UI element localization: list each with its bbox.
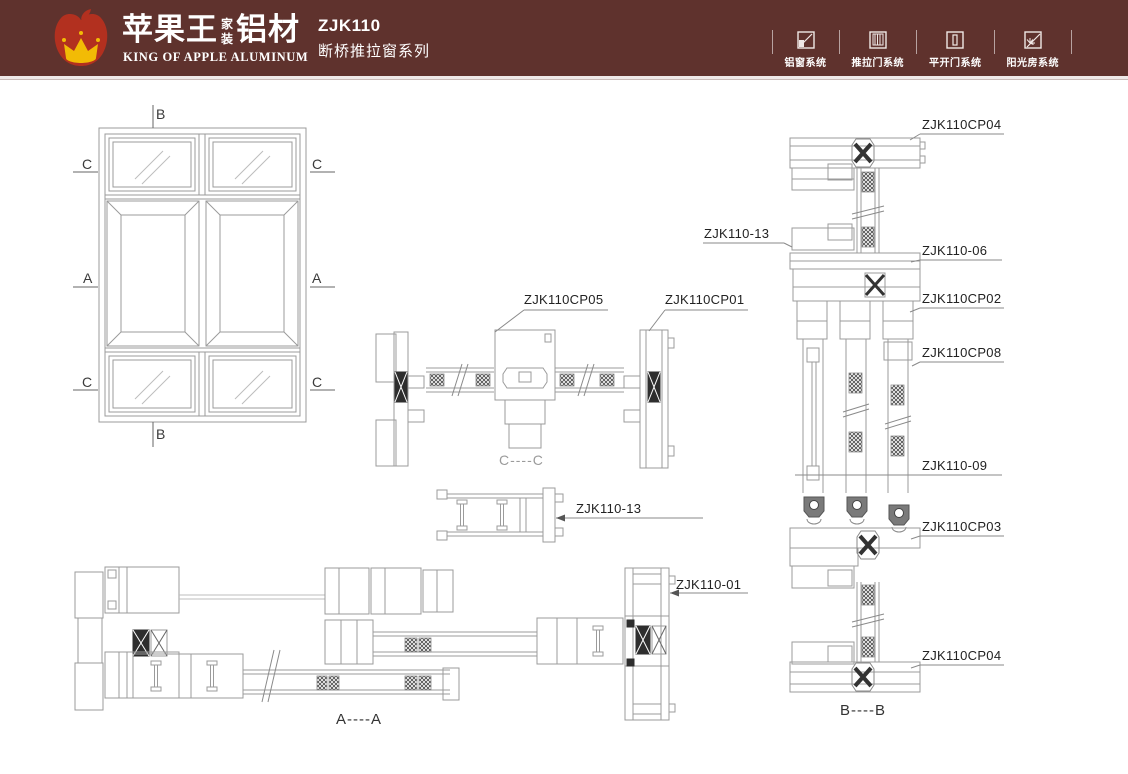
section-aa-drawing — [75, 567, 748, 720]
roller — [804, 497, 824, 524]
brand-name-en: KING OF APPLE ALUMINUM — [123, 50, 308, 65]
label-zjk110cp04-top: ZJK110CP04 — [922, 117, 1001, 132]
nav-item-window-system[interactable]: 铝窗系统 — [785, 30, 827, 69]
brand-name: 苹果王 家 装 铝材 — [122, 14, 300, 47]
nav-item-sunroom-system[interactable]: 阳光房系统 — [1007, 30, 1060, 69]
elevation-drawing — [73, 105, 335, 447]
elevation-marker-c-bottom-right: C — [312, 374, 322, 390]
label-zjk110cp03: ZJK110CP03 — [922, 519, 1001, 534]
label-zjk110cp01: ZJK110CP01 — [665, 292, 744, 307]
brand-cn-suffix: 铝材 — [236, 14, 300, 45]
system-nav: 铝窗系统 推拉门系统 平开门系统 — [760, 30, 1085, 69]
window-system-icon — [796, 30, 816, 50]
elevation-marker-a-right: A — [312, 270, 321, 286]
nav-separator — [839, 30, 840, 54]
elevation-marker-c-top-left: C — [82, 156, 92, 172]
sliding-door-system-icon — [868, 30, 888, 50]
nav-item-casement-door-system[interactable]: 平开门系统 — [929, 30, 982, 69]
brand-cn-stack: 家 装 — [221, 17, 233, 47]
product-code: ZJK110 — [318, 16, 381, 36]
section-cc-drawing — [376, 310, 748, 468]
nav-separator — [1071, 30, 1072, 54]
section-caption-bb: B----B — [840, 702, 886, 719]
elevation-marker-b-bottom: B — [156, 426, 165, 442]
elevation-marker-c-bottom-left: C — [82, 374, 92, 390]
label-zjk110-13-left: ZJK110-13 — [704, 226, 769, 241]
brand-cn-main: 苹果王 — [122, 14, 218, 45]
product-series-title: 断桥推拉窗系列 — [318, 40, 430, 61]
sunroom-system-icon — [1023, 30, 1043, 50]
label-zjk110-06: ZJK110-06 — [922, 243, 987, 258]
label-zjk110cp08: ZJK110CP08 — [922, 345, 1001, 360]
apple-logo — [50, 7, 112, 69]
label-zjk110cp05: ZJK110CP05 — [524, 292, 603, 307]
header: 苹果王 家 装 铝材 KING OF APPLE ALUMINUM ZJK110… — [0, 0, 1128, 79]
casement-door-system-icon — [945, 30, 965, 50]
profile-13-drawing — [437, 488, 703, 542]
label-zjk110-09: ZJK110-09 — [922, 458, 987, 473]
label-zjk110-01: ZJK110-01 — [676, 577, 741, 592]
label-zjk110cp04-bottom: ZJK110CP04 — [922, 648, 1001, 663]
section-caption-cc: C----C — [499, 452, 544, 468]
nav-separator — [916, 30, 917, 54]
elevation-marker-b-top: B — [156, 106, 165, 122]
nav-separator — [772, 30, 773, 54]
roller — [847, 497, 867, 524]
nav-item-sliding-door-system[interactable]: 推拉门系统 — [852, 30, 905, 69]
technical-drawings — [0, 76, 1128, 774]
elevation-marker-a-left: A — [83, 270, 92, 286]
label-zjk110-13-mid: ZJK110-13 — [576, 501, 641, 516]
label-zjk110cp02: ZJK110CP02 — [922, 291, 1001, 306]
section-bb-drawing — [703, 134, 1004, 692]
nav-separator — [994, 30, 995, 54]
catalog-page: 苹果王 家 装 铝材 KING OF APPLE ALUMINUM ZJK110… — [0, 0, 1128, 774]
section-caption-aa: A----A — [336, 711, 382, 728]
elevation-marker-c-top-right: C — [312, 156, 322, 172]
